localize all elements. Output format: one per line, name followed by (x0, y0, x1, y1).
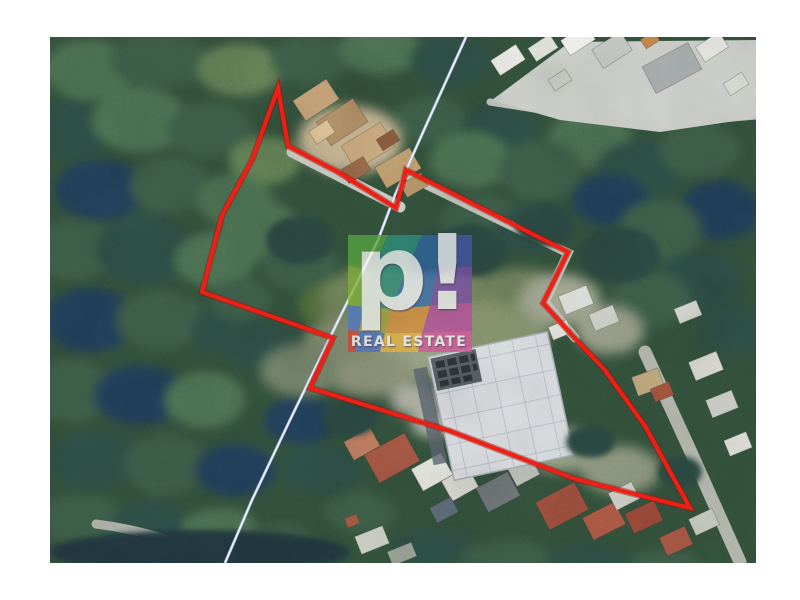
page-canvas: p! REAL ESTATE (0, 0, 800, 600)
logo-mark-text: p! (353, 212, 467, 334)
logo-tagline: REAL ESTATE (351, 334, 467, 350)
aerial-photo: p! REAL ESTATE (50, 37, 756, 563)
watermark-logo: p! REAL ESTATE (348, 212, 472, 352)
satellite-photo-svg: p! REAL ESTATE (50, 37, 756, 563)
